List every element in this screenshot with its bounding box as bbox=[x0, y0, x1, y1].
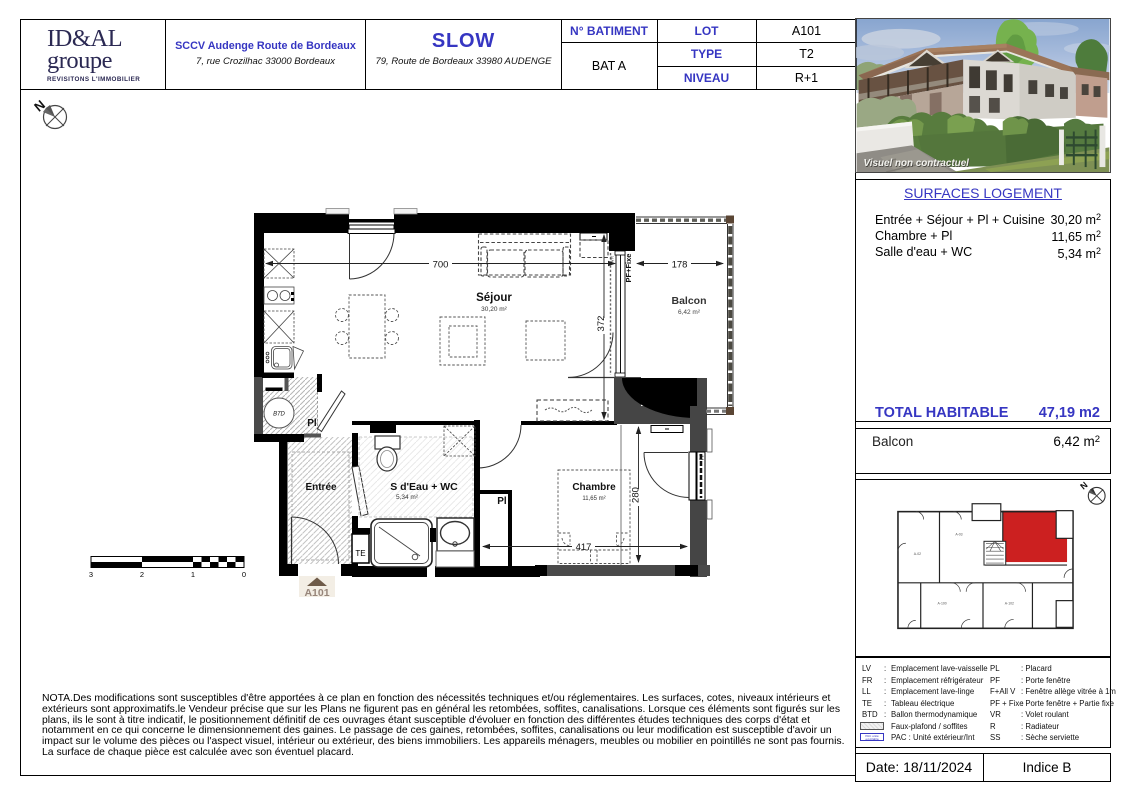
svg-text:B7D: B7D bbox=[273, 412, 285, 418]
svg-text:372: 372 bbox=[596, 316, 607, 332]
svg-text:Visuel non contractuel: Visuel non contractuel bbox=[864, 158, 970, 169]
svg-text:30,20 m²: 30,20 m² bbox=[481, 306, 507, 313]
svg-text:A-100: A-100 bbox=[938, 602, 947, 606]
svg-text:Pl: Pl bbox=[307, 418, 317, 429]
svg-text:PF+Fixe: PF+Fixe bbox=[624, 254, 633, 283]
svg-text:TE: TE bbox=[355, 549, 365, 558]
svg-text:0: 0 bbox=[242, 570, 246, 579]
svg-text:Séjour: Séjour bbox=[476, 292, 512, 304]
svg-text:Pl: Pl bbox=[497, 496, 507, 507]
svg-text:N: N bbox=[1078, 480, 1089, 492]
svg-text:2: 2 bbox=[140, 570, 144, 579]
svg-text:Chambre: Chambre bbox=[572, 482, 616, 493]
svg-text:S d'Eau + WC: S d'Eau + WC bbox=[390, 481, 458, 493]
svg-text:A-02: A-02 bbox=[914, 552, 921, 556]
svg-text:6,42 m²: 6,42 m² bbox=[678, 309, 701, 316]
svg-text:1: 1 bbox=[191, 570, 195, 579]
svg-text:178: 178 bbox=[672, 260, 688, 271]
svg-text:280: 280 bbox=[631, 487, 642, 503]
svg-text:Entrée: Entrée bbox=[305, 482, 337, 493]
svg-text:417: 417 bbox=[576, 542, 592, 553]
svg-text:A-102: A-102 bbox=[1005, 602, 1014, 606]
svg-text:VR: VR bbox=[610, 255, 615, 262]
svg-text:A101: A101 bbox=[304, 587, 329, 599]
svg-text:PF: PF bbox=[700, 454, 706, 460]
svg-text:700: 700 bbox=[433, 260, 449, 271]
svg-text:3: 3 bbox=[89, 570, 93, 579]
svg-text:5,34 m²: 5,34 m² bbox=[396, 494, 419, 501]
svg-text:11,65 m²: 11,65 m² bbox=[582, 496, 605, 502]
svg-text:Balcon: Balcon bbox=[671, 295, 706, 307]
svg-text:A-03: A-03 bbox=[955, 532, 962, 536]
